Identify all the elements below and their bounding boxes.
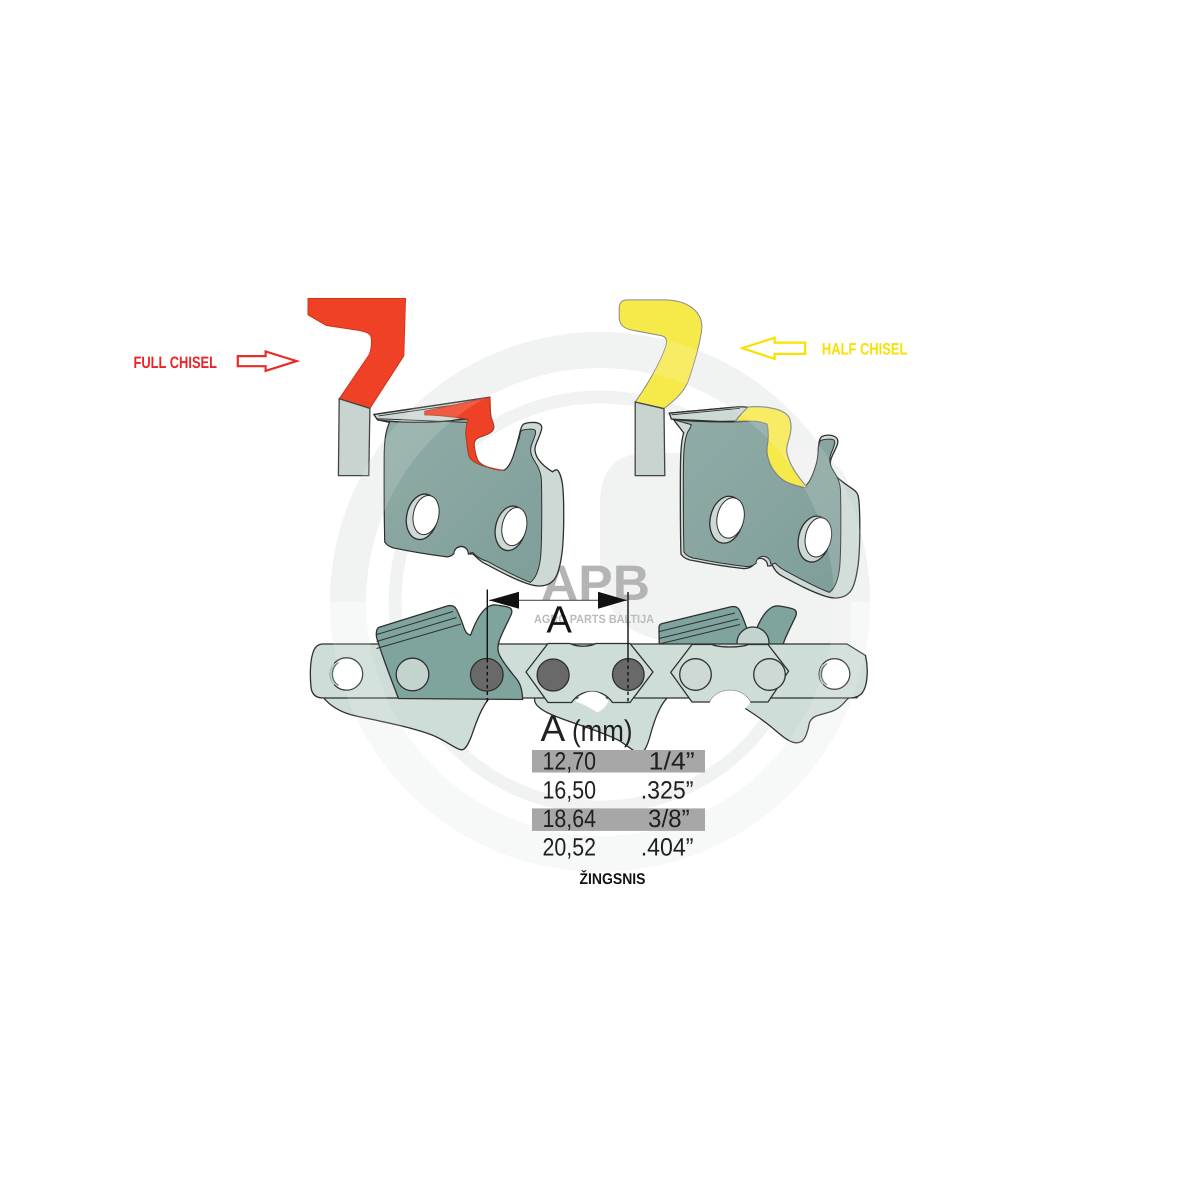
svg-text:.404”: .404”	[641, 834, 694, 862]
svg-text:12,70: 12,70	[543, 748, 597, 776]
svg-text:20,52: 20,52	[543, 834, 597, 862]
svg-text:16,50: 16,50	[543, 776, 597, 804]
svg-text:3/8”: 3/8”	[648, 805, 690, 833]
svg-text:ŽINGSNIS: ŽINGSNIS	[580, 870, 646, 888]
svg-text:(mm): (mm)	[572, 715, 633, 748]
svg-text:1/4”: 1/4”	[649, 748, 695, 776]
svg-text:HALF CHISEL: HALF CHISEL	[822, 341, 908, 359]
svg-text:A: A	[547, 600, 573, 642]
svg-text:A: A	[541, 708, 566, 749]
svg-text:18,64: 18,64	[543, 805, 597, 833]
svg-text:.325”: .325”	[641, 776, 694, 804]
svg-text:FULL CHISEL: FULL CHISEL	[134, 354, 218, 372]
